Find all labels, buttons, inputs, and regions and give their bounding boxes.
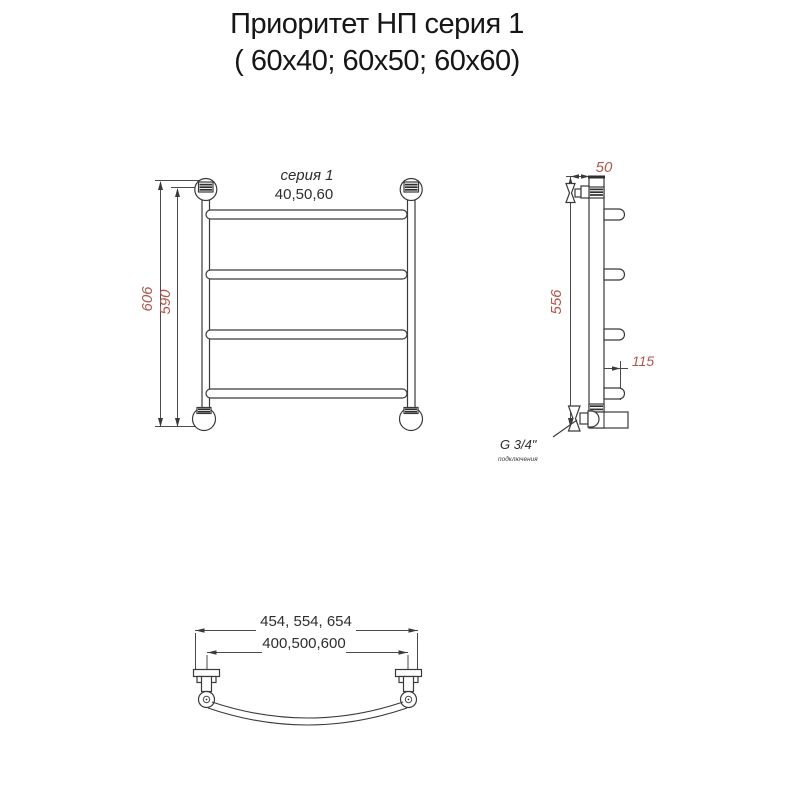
front-widths-label: 40,50,60	[275, 186, 333, 203]
front-bottom-brackets	[197, 408, 418, 414]
front-dim-mount-height: 590	[157, 289, 174, 315]
side-dim-depth: 115	[632, 353, 655, 369]
front-vertical-posts	[202, 190, 415, 420]
bottom-view-drawing: 454, 554, 654 400,500,600	[175, 600, 455, 770]
front-series-label: серия 1	[280, 167, 333, 184]
thread-size-label: G 3/4"	[500, 437, 538, 452]
side-top-bracket-band	[589, 187, 604, 198]
title-line-1: Приоритет НП серия 1	[0, 6, 754, 43]
front-dim-overall-height: 606	[139, 286, 156, 312]
side-vertical-pipe	[588, 176, 605, 429]
side-view-drawing: 50 556 115 G 3/4" под	[490, 150, 680, 470]
side-rung-stubs	[604, 209, 625, 399]
bottom-dim-overall-widths: 454, 554, 654	[260, 613, 352, 630]
front-view-svg: 606 590 серия 1 40,50,6	[138, 150, 472, 450]
front-rungs	[206, 210, 407, 398]
thread-note-label: подключения	[498, 455, 538, 463]
bottom-dim-mount-widths: 400,500,600	[262, 635, 345, 652]
title-line-2: ( 60х40; 60х50; 60х60)	[0, 43, 754, 80]
bottom-right-bracket	[396, 670, 422, 708]
bottom-view-svg: 454, 554, 654 400,500,600	[175, 600, 455, 770]
bottom-curved-tube	[208, 702, 407, 725]
bottom-mount-dimension	[207, 650, 408, 691]
side-bottom-valve	[553, 406, 599, 437]
side-dim-mount-height: 556	[548, 289, 565, 315]
side-dim-top-offset: 50	[596, 159, 613, 176]
front-view-drawing: 606 590 серия 1 40,50,6	[138, 150, 472, 450]
drawing-title: Приоритет НП серия 1 ( 60х40; 60х50; 60х…	[0, 6, 754, 80]
bottom-left-bracket	[194, 670, 220, 708]
side-top-fitting	[566, 184, 589, 203]
side-view-svg: 50 556 115 G 3/4" под	[490, 150, 680, 470]
